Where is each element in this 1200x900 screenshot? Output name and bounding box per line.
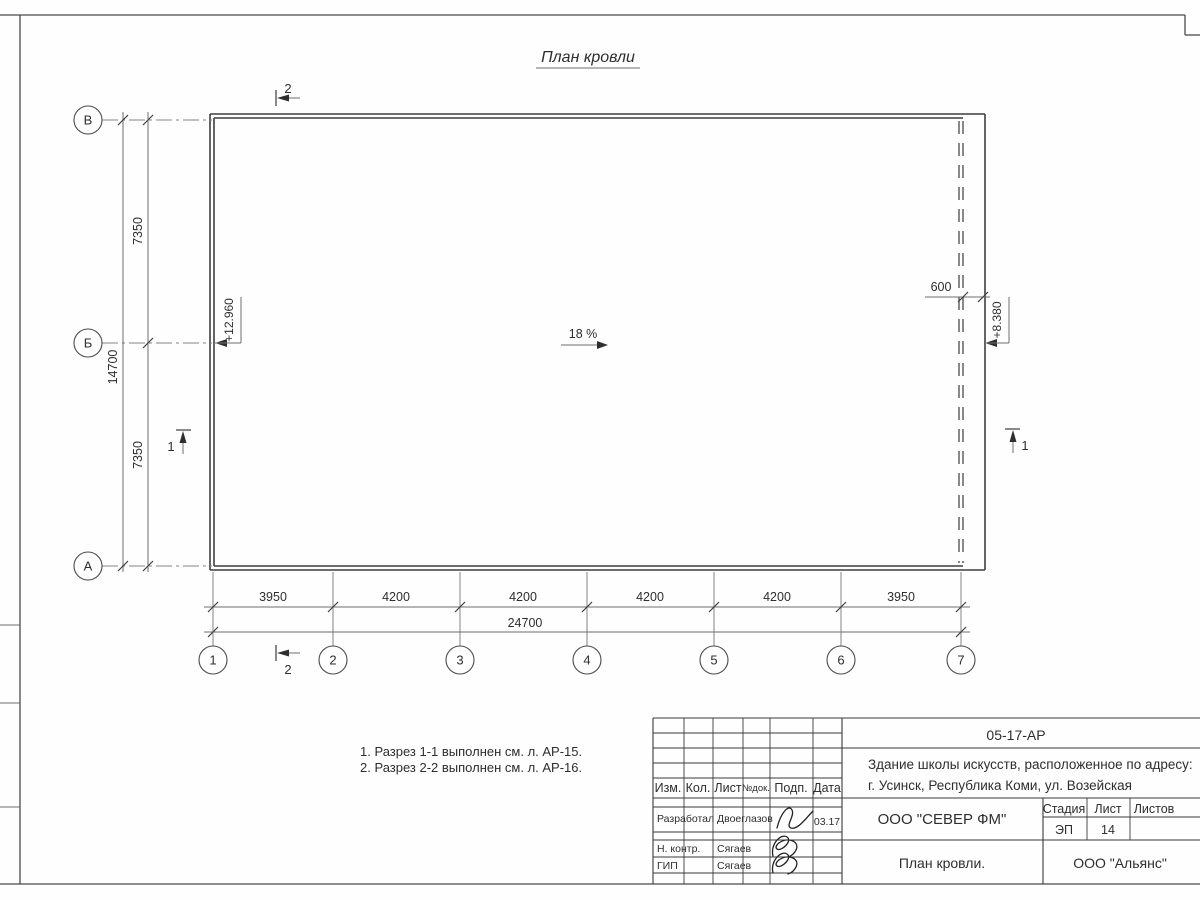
tb-col-podp: Подп. — [774, 781, 807, 795]
dim-h-segment-4: 4200 — [763, 590, 791, 604]
dim-h-total: 24700 — [508, 616, 543, 630]
slope-arrow-icon — [597, 341, 608, 349]
elevation-main: +12.960 — [215, 297, 241, 347]
signature-ncontr — [772, 836, 796, 857]
tb-ncontr-label: Н. контр. — [657, 843, 700, 855]
tb-gip-name: Сягаев — [717, 860, 752, 872]
tb-sheet-label: Лист — [1094, 802, 1121, 816]
slope-mark: 18 % — [561, 327, 608, 349]
grid-row-label-1: Б — [84, 336, 93, 351]
note-line-2: 2. Разрез 2-2 выполнен см. л. АР-16. — [360, 760, 582, 775]
grid-col-label-2: 3 — [456, 653, 463, 668]
tb-col-list: Лист — [714, 781, 741, 795]
parapet-offset-dimension: 600 — [925, 280, 990, 302]
dim-v-segment-1: 7350 — [131, 441, 145, 469]
section-mark-1-right: 1 — [1005, 429, 1029, 453]
dim-h-segment-5: 3950 — [887, 590, 915, 604]
grid-row-label-0: В — [84, 113, 93, 128]
section-mark-1-left: 1 — [167, 430, 191, 454]
tb-col-data: Дата — [813, 781, 841, 795]
grid-col-label-3: 4 — [583, 653, 590, 668]
roof-plan-canvas: План кровли В Б А — [0, 0, 1200, 900]
page-title: План кровли — [541, 49, 635, 66]
dim-v-total: 14700 — [106, 350, 120, 385]
notes: 1. Разрез 1-1 выполнен см. л. АР-15. 2. … — [360, 744, 582, 775]
tb-col-kol: Кол. — [686, 781, 711, 795]
grid-row-axes: В Б А — [74, 106, 212, 580]
grid-col-label-6: 7 — [957, 653, 964, 668]
dim-parapet-offset: 600 — [931, 280, 952, 294]
tb-stage-label: Стадия — [1043, 802, 1086, 816]
section-mark-2-bottom: 2 — [276, 645, 300, 677]
signature-developed — [777, 808, 813, 828]
tb-developed-label: Разработал — [657, 813, 714, 825]
tb-col-ndok: №док. — [742, 783, 770, 794]
section-1-right-label: 1 — [1021, 438, 1028, 453]
elevation-low: +8.380 — [985, 297, 1009, 347]
tb-developed-name: Двоеглазов — [717, 813, 773, 825]
tb-sheets-label: Листов — [1134, 802, 1175, 816]
tb-object-line-2: г. Усинск, Республика Коми, ул. Возейска… — [868, 778, 1132, 793]
grid-col-label-1: 2 — [329, 653, 336, 668]
drawing-sheet: План кровли В Б А — [0, 0, 1200, 900]
grid-col-label-5: 6 — [837, 653, 844, 668]
vertical-dimensions: 7350 7350 14700 — [106, 112, 153, 572]
tb-ncontr-name: Сягаев — [717, 843, 752, 855]
dim-h-segment-2: 4200 — [509, 590, 537, 604]
tb-doc-number: 05-17-АР — [986, 727, 1045, 743]
grid-row-label-2: А — [84, 559, 93, 574]
tb-company: ООО "СЕВЕР ФМ" — [878, 811, 1007, 828]
note-line-1: 1. Разрез 1-1 выполнен см. л. АР-15. — [360, 744, 582, 759]
parapet-hidden-edge — [959, 121, 963, 563]
tb-contractor: ООО "Альянс" — [1073, 855, 1167, 871]
dim-h-segment-0: 3950 — [259, 590, 287, 604]
drawing-title: План кровли — [536, 49, 640, 68]
signature-gip — [772, 853, 796, 874]
section-mark-2-top: 2 — [276, 81, 300, 106]
slope-label: 18 % — [569, 327, 598, 341]
elevation-low-label: +8.380 — [990, 301, 1004, 338]
grid-column-axes: 1 2 3 4 5 6 7 — [199, 572, 975, 674]
tb-sheet-title: План кровли. — [899, 855, 985, 871]
section-2-top-label: 2 — [284, 81, 291, 96]
tb-sheet-value: 14 — [1101, 823, 1115, 837]
tb-gip-label: ГИП — [657, 860, 678, 872]
grid-col-label-0: 1 — [209, 653, 216, 668]
tb-col-izm: Изм. — [655, 781, 682, 795]
tb-stage-value: ЭП — [1055, 823, 1073, 837]
section-2-bottom-label: 2 — [284, 662, 291, 677]
sheet-frame — [0, 15, 1200, 884]
grid-col-label-4: 5 — [710, 653, 717, 668]
title-block: Изм. Кол. Лист №док. Подп. Дата Разработ… — [653, 718, 1200, 884]
dim-v-segment-0: 7350 — [131, 217, 145, 245]
dim-h-segment-1: 4200 — [382, 590, 410, 604]
tb-object-line-1: Здание школы искусств, расположенное по … — [868, 757, 1193, 772]
tb-developed-date: 03.17 — [814, 816, 840, 828]
section-1-left-label: 1 — [167, 439, 174, 454]
elevation-main-label: +12.960 — [222, 298, 236, 342]
dim-h-segment-3: 4200 — [636, 590, 664, 604]
